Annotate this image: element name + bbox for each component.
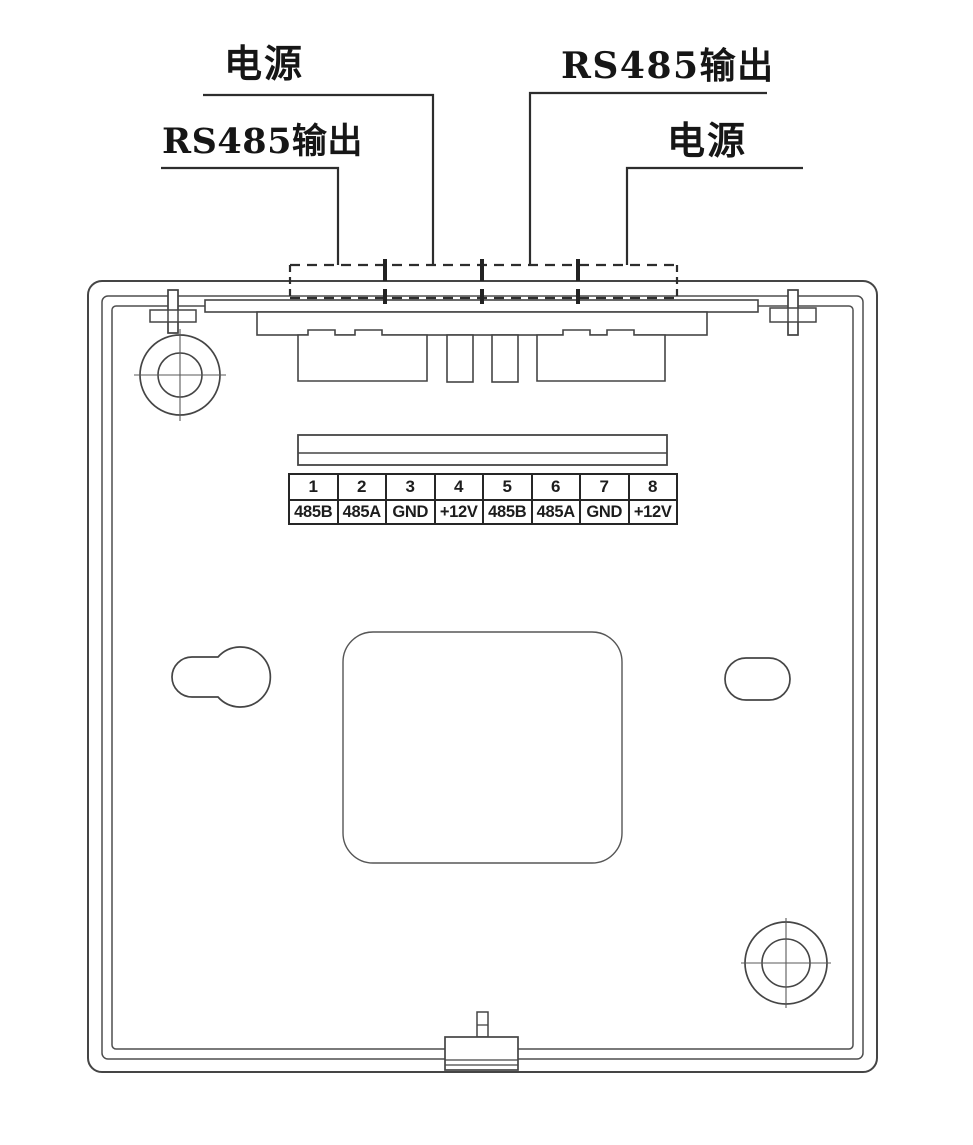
callout-rs485-top-right: RS485输出 (561, 48, 775, 84)
pin-signal-cell: GND (386, 500, 435, 524)
callout-power-top-left: 电源 (224, 45, 304, 83)
terminal-table: 1 2 3 4 5 6 7 8 485B 485A GND +12V 485B … (288, 473, 678, 525)
pin-number-cell: 2 (338, 474, 387, 500)
pin-number-cell: 7 (580, 474, 629, 500)
pin-signal-cell: 485A (532, 500, 581, 524)
device-rear-line-art (0, 0, 973, 1145)
pin-signal-cell: 485A (338, 500, 387, 524)
connector-pin-small-right (492, 335, 518, 382)
pin-number-cell: 3 (386, 474, 435, 500)
connector-block-left (298, 330, 427, 381)
central-rounded-cutout (343, 632, 622, 863)
pin-signal-cell: +12V (435, 500, 484, 524)
pin-number-cell: 5 (483, 474, 532, 500)
pin-signal-cell: +12V (629, 500, 678, 524)
leader-power-mid-right (627, 168, 803, 265)
mount-post-cross-left-horizontal (150, 310, 196, 322)
oval-slot-right (725, 658, 790, 700)
pin-signal-cell: GND (580, 500, 629, 524)
connector-block-right (537, 330, 665, 381)
callout-rs485-mid-left: RS485输出 (162, 124, 363, 159)
terminal-pin-row: 1 2 3 4 5 6 7 8 (289, 474, 677, 500)
mount-post-cross-right-horizontal (770, 308, 816, 322)
terminal-signal-row: 485B 485A GND +12V 485B 485A GND +12V (289, 500, 677, 524)
pin-number-cell: 8 (629, 474, 678, 500)
terminal-strip (298, 435, 667, 465)
pin-number-cell: 6 (532, 474, 581, 500)
pin-signal-cell: 485B (483, 500, 532, 524)
wiring-diagram-canvas: 电源 RS485输出 RS485输出 电源 1 2 3 4 5 6 7 8 48… (0, 0, 973, 1145)
callout-power-mid-right: 电源 (667, 122, 747, 160)
connector-pin-small-left (447, 335, 473, 382)
pin-number-cell: 1 (289, 474, 338, 500)
pin-number-cell: 4 (435, 474, 484, 500)
leader-rs485-mid-left (161, 168, 338, 265)
pin-signal-cell: 485B (289, 500, 338, 524)
